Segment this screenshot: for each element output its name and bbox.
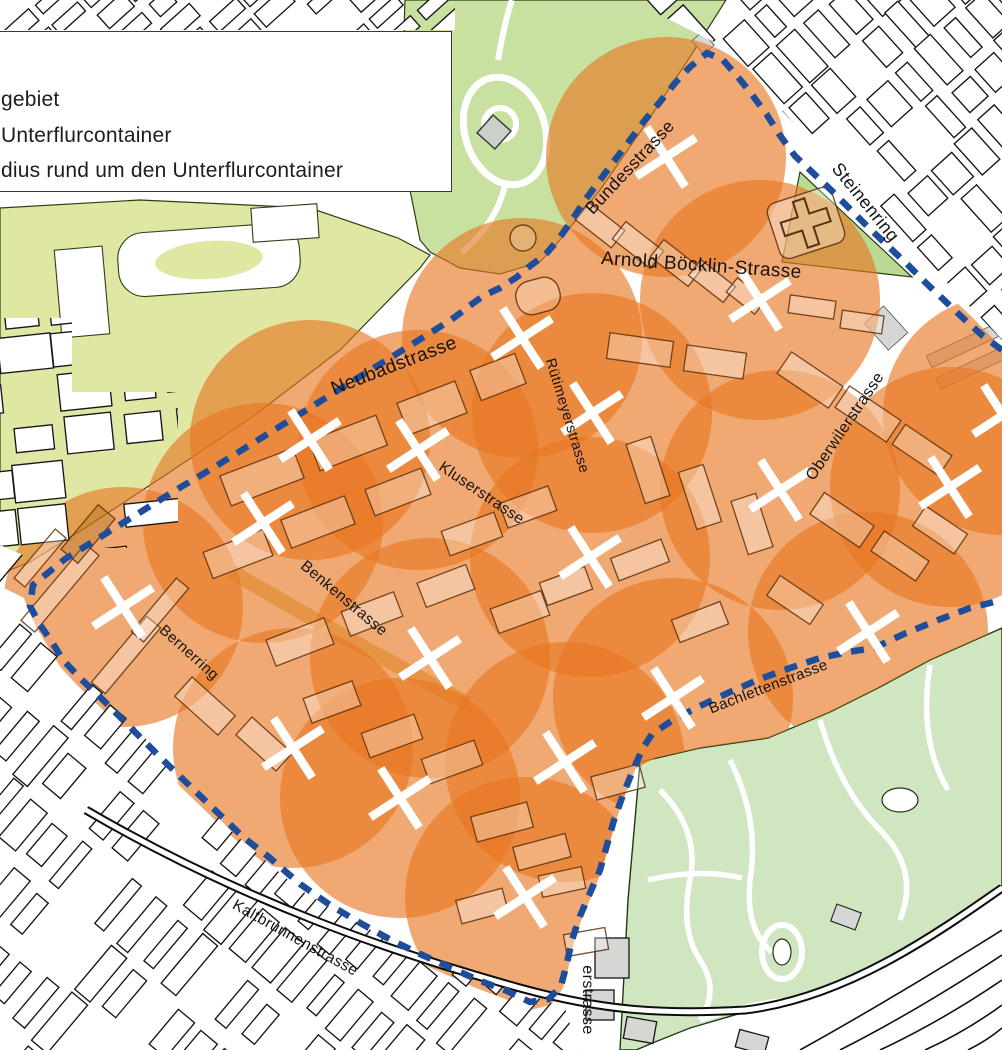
street-label: erstrasse: [579, 965, 596, 1034]
map-screenshot: BundesstrasseArnold Böcklin-StrasseStein…: [0, 0, 1002, 1050]
legend-item-container: Unterflurcontainer: [1, 118, 451, 154]
legend-item-radius: dius rund um den Unterflurcontainer: [1, 153, 451, 189]
legend-item-pilot-area: gebiet: [1, 82, 451, 118]
legend-box: gebiet Unterflurcontainer dius rund um d…: [0, 31, 452, 192]
